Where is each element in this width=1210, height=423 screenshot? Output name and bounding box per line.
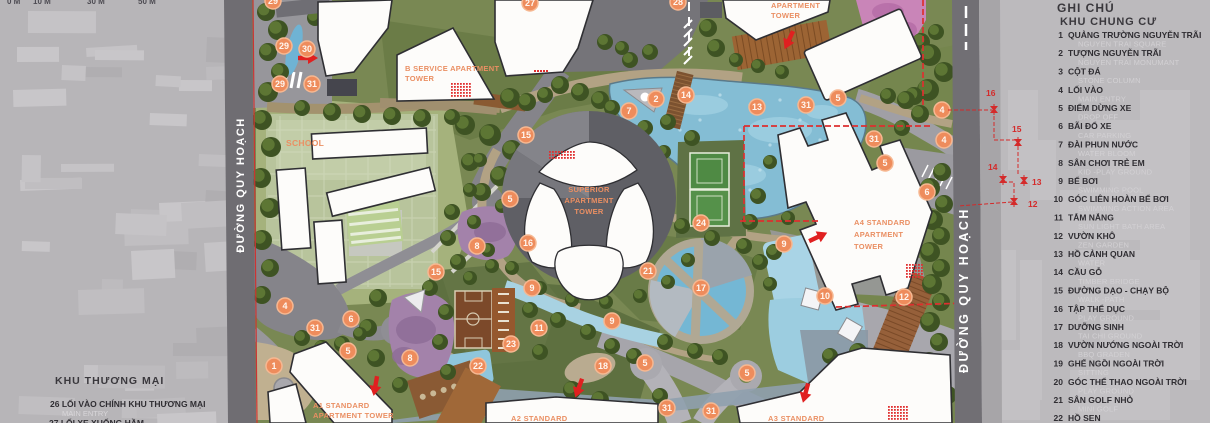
svg-text:27 LỐI XE XUỐNG HẦM: 27 LỐI XE XUỐNG HẦM <box>49 417 144 423</box>
svg-text:ĐIỂM DỪNG XE: ĐIỂM DỪNG XE <box>1068 102 1132 113</box>
svg-text:22: 22 <box>473 361 483 371</box>
svg-text:SUPERIOR: SUPERIOR <box>568 185 610 194</box>
svg-text:9: 9 <box>781 239 786 249</box>
svg-text:GHẾ NGỒI NGOÀI TRỜI: GHẾ NGỒI NGOÀI TRỜI <box>1068 358 1164 369</box>
svg-text:16: 16 <box>1054 304 1064 314</box>
svg-text:24: 24 <box>696 218 706 228</box>
svg-text:5: 5 <box>642 358 647 368</box>
svg-text:11: 11 <box>1054 213 1063 223</box>
svg-text:ĐƯỜNG DẠO - CHẠY BỘ: ĐƯỜNG DẠO - CHẠY BỘ <box>1068 285 1169 296</box>
svg-text:A2 STANDARD: A2 STANDARD <box>511 414 568 423</box>
svg-text:4: 4 <box>941 135 946 145</box>
svg-text:8: 8 <box>474 241 479 251</box>
svg-text:5: 5 <box>882 158 887 168</box>
svg-text:4: 4 <box>1058 85 1063 95</box>
svg-text:29: 29 <box>279 41 289 51</box>
svg-text:30 M: 30 M <box>87 0 105 6</box>
svg-text:A1 STANDARD: A1 STANDARD <box>313 401 370 410</box>
svg-text:HỒ SEN: HỒ SEN <box>1068 412 1101 423</box>
svg-text:30: 30 <box>302 44 312 54</box>
svg-text:SCHOOL: SCHOOL <box>286 138 324 148</box>
svg-text:APARTMENT: APARTMENT <box>564 196 613 205</box>
svg-text:1: 1 <box>1058 30 1063 40</box>
svg-text:14: 14 <box>681 90 691 100</box>
svg-text:VƯỜN KHÔ: VƯỜN KHÔ <box>1068 230 1116 241</box>
svg-text:ĐƯỜNG QUY HOẠCH: ĐƯỜNG QUY HOẠCH <box>956 207 971 373</box>
svg-text:TOWER: TOWER <box>574 207 604 216</box>
svg-text:8: 8 <box>1058 158 1063 168</box>
svg-text:17: 17 <box>1054 322 1064 332</box>
svg-text:A3 STANDARD: A3 STANDARD <box>768 414 825 423</box>
svg-text:9: 9 <box>529 283 534 293</box>
svg-text:26 LỐI VÀO CHÍNH KHU THƯƠNG M: 26 LỐI VÀO CHÍNH KHU THƯƠNG MẠI <box>50 398 206 409</box>
svg-text:5: 5 <box>1058 103 1063 113</box>
svg-text:31: 31 <box>662 403 672 413</box>
svg-text:20: 20 <box>1054 377 1064 387</box>
svg-text:10: 10 <box>1054 194 1064 204</box>
svg-text:SÂN GOLF NHỎ: SÂN GOLF NHỎ <box>1068 394 1134 405</box>
svg-text:CỘT ĐÁ: CỘT ĐÁ <box>1068 66 1101 77</box>
svg-text:ĐÀI PHUN NƯỚC: ĐÀI PHUN NƯỚC <box>1068 139 1138 150</box>
svg-text:31: 31 <box>706 406 716 416</box>
svg-text:21: 21 <box>1054 395 1064 405</box>
svg-text:0 M: 0 M <box>7 0 21 6</box>
svg-text:B SERVICE APARTMENT: B SERVICE APARTMENT <box>405 64 499 73</box>
svg-text:HỒ CẢNH QUAN: HỒ CẢNH QUAN <box>1068 248 1135 259</box>
svg-text:TẮM NẮNG: TẮM NẮNG <box>1068 213 1114 223</box>
svg-text:2: 2 <box>1058 48 1063 58</box>
svg-text:6: 6 <box>1058 121 1063 131</box>
svg-text:GÓC THỂ THAO NGOÀI TRỜI: GÓC THỂ THAO NGOÀI TRỜI <box>1068 376 1187 387</box>
svg-text:16: 16 <box>986 88 996 98</box>
svg-text:13: 13 <box>1054 249 1064 259</box>
svg-text:15: 15 <box>1054 286 1064 296</box>
svg-text:GÓC LIÊN HOÀN BỂ BƠI: GÓC LIÊN HOÀN BỂ BƠI <box>1068 193 1169 204</box>
svg-text:KHU CHUNG CƯ: KHU CHUNG CƯ <box>1060 16 1157 28</box>
svg-text:ĐƯỜNG QUY HOẠCH: ĐƯỜNG QUY HOẠCH <box>234 117 247 253</box>
svg-text:31: 31 <box>307 79 317 89</box>
svg-text:DƯỠNG SINH: DƯỠNG SINH <box>1068 322 1124 332</box>
svg-text:APARTMENT: APARTMENT <box>854 230 903 239</box>
svg-text:50 M: 50 M <box>138 0 156 6</box>
svg-text:10 M: 10 M <box>33 0 51 6</box>
svg-text:9: 9 <box>609 316 614 326</box>
svg-text:31: 31 <box>801 100 811 110</box>
svg-text:5: 5 <box>345 346 350 356</box>
svg-text:2: 2 <box>653 94 658 104</box>
svg-text:SÂN CHƠI TRẺ EM: SÂN CHƠI TRẺ EM <box>1068 157 1145 168</box>
svg-text:7: 7 <box>1058 140 1063 150</box>
svg-text:15: 15 <box>521 130 531 140</box>
svg-text:21: 21 <box>643 266 653 276</box>
svg-text:6: 6 <box>924 187 929 197</box>
svg-text:KHU THƯƠNG MẠI: KHU THƯƠNG MẠI <box>55 375 164 387</box>
svg-text:14: 14 <box>1054 267 1064 277</box>
svg-text:APARTMENT: APARTMENT <box>771 1 820 10</box>
svg-text:4: 4 <box>939 105 944 115</box>
svg-text:TẬP THỂ DỤC: TẬP THỂ DỤC <box>1068 303 1125 314</box>
svg-text:6: 6 <box>348 314 353 324</box>
svg-text:31: 31 <box>869 134 879 144</box>
svg-text:27: 27 <box>525 0 535 8</box>
svg-text:LỐI VÀO: LỐI VÀO <box>1068 84 1103 95</box>
svg-text:12: 12 <box>1028 199 1038 209</box>
svg-text:12: 12 <box>1054 231 1064 241</box>
svg-text:MAIN ENTRY: MAIN ENTRY <box>62 409 108 418</box>
svg-text:13: 13 <box>1032 177 1042 187</box>
svg-text:15: 15 <box>1012 124 1022 134</box>
svg-text:9: 9 <box>1058 176 1063 186</box>
svg-text:29: 29 <box>275 79 285 89</box>
svg-text:16: 16 <box>523 238 533 248</box>
svg-text:7: 7 <box>626 106 631 116</box>
svg-text:5: 5 <box>835 93 840 103</box>
svg-text:GHI CHÚ: GHI CHÚ <box>1057 0 1115 15</box>
svg-text:13: 13 <box>752 102 762 112</box>
svg-text:15: 15 <box>431 267 441 277</box>
svg-text:5: 5 <box>744 368 749 378</box>
svg-text:TƯỢNG NGUYỄN TRÃI: TƯỢNG NGUYỄN TRÃI <box>1068 47 1161 58</box>
svg-text:22: 22 <box>1054 413 1064 423</box>
svg-text:31: 31 <box>310 323 320 333</box>
svg-text:29: 29 <box>268 0 278 6</box>
svg-text:A4 STANDARD: A4 STANDARD <box>854 218 911 227</box>
svg-text:TOWER: TOWER <box>854 242 884 251</box>
svg-text:17: 17 <box>696 283 706 293</box>
svg-text:TOWER: TOWER <box>405 74 435 83</box>
svg-text:VƯỜN NƯỚNG NGOÀI TRỜI: VƯỜN NƯỚNG NGOÀI TRỜI <box>1068 339 1183 350</box>
svg-text:QUẢNG TRƯỜNG NGUYỄN TRÃI: QUẢNG TRƯỜNG NGUYỄN TRÃI <box>1068 29 1201 40</box>
svg-text:BÃI ĐỔ XE: BÃI ĐỔ XE <box>1068 120 1112 131</box>
svg-text:4: 4 <box>282 301 287 311</box>
svg-text:14: 14 <box>988 162 998 172</box>
svg-text:APARTMENT TOWER: APARTMENT TOWER <box>313 411 394 420</box>
svg-text:11: 11 <box>534 323 544 333</box>
svg-text:BỂ BƠI: BỂ BƠI <box>1068 175 1098 186</box>
svg-text:12: 12 <box>899 292 909 302</box>
svg-text:28: 28 <box>673 0 683 7</box>
svg-text:5: 5 <box>507 194 512 204</box>
svg-text:18: 18 <box>598 361 608 371</box>
svg-text:10: 10 <box>820 291 830 301</box>
svg-text:CẦU GỖ: CẦU GỖ <box>1068 266 1102 277</box>
svg-text:18: 18 <box>1054 340 1064 350</box>
svg-text:23: 23 <box>506 339 516 349</box>
svg-text:8: 8 <box>407 353 412 363</box>
svg-text:1: 1 <box>271 361 276 371</box>
svg-text:3: 3 <box>1058 67 1063 77</box>
svg-text:TOWER: TOWER <box>771 11 801 20</box>
svg-text:19: 19 <box>1054 359 1064 369</box>
